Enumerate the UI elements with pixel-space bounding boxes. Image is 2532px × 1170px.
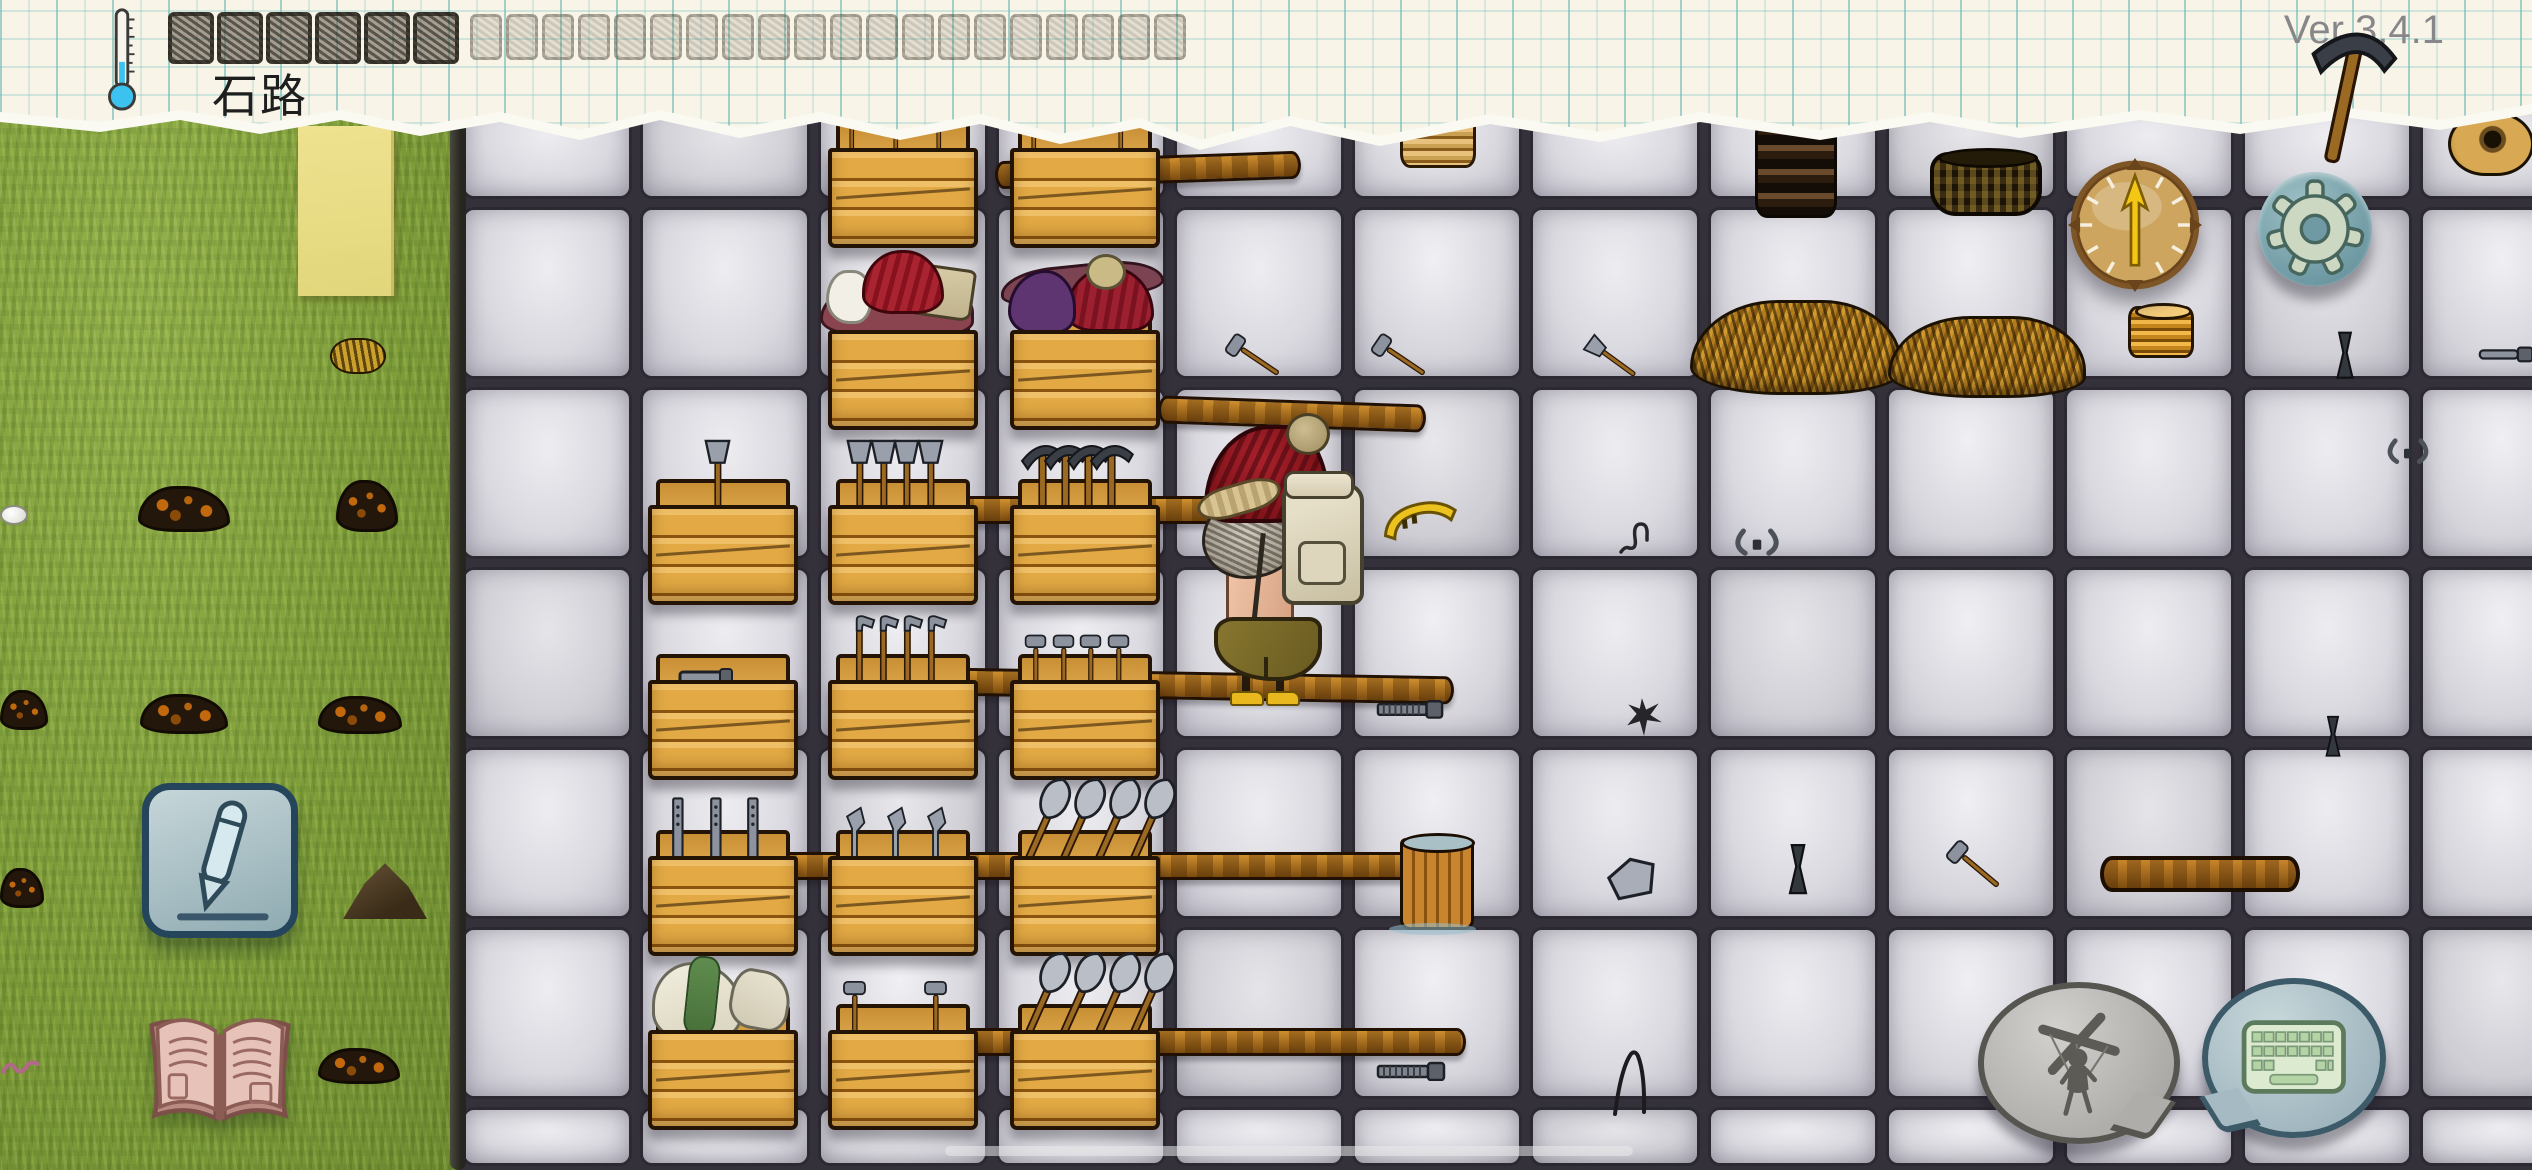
box-front [648,680,798,780]
stone-road-tile[interactable] [2420,747,2532,919]
log[interactable] [2100,856,2300,892]
gear-icon [2258,172,2372,286]
stone-road-tile[interactable] [1352,1107,1522,1166]
craft-slot-faint[interactable] [650,14,682,60]
box-front [1010,680,1160,780]
bent-wire[interactable] [1606,1046,1658,1118]
player-character[interactable] [1198,425,1356,710]
box-front [1010,330,1160,430]
adze-tool [908,614,954,690]
stone-road-tile[interactable] [2064,747,2234,919]
temperature-thermometer-icon [100,6,144,112]
craft-slot[interactable] [315,12,361,64]
storage-box[interactable] [1010,856,1160,956]
parenting-mode-button[interactable] [1978,982,2168,1132]
craft-slot-faint[interactable] [758,14,790,60]
box-front [1010,1030,1160,1130]
clothes-pile[interactable] [652,956,792,1038]
stone-road-tile[interactable] [462,207,632,379]
metal-file[interactable] [1376,698,1446,720]
terrain-border [450,96,466,1170]
storage-box[interactable] [828,856,978,956]
bucket[interactable] [1400,838,1474,930]
tongs[interactable] [2384,436,2432,468]
storage-box[interactable] [648,505,798,605]
axe-head[interactable] [1601,852,1663,905]
axe-tool [907,437,954,515]
box-front [828,856,978,956]
box-front [1010,505,1160,605]
egg[interactable] [0,505,28,525]
storage-box[interactable] [828,330,978,430]
craft-slot[interactable] [364,12,410,64]
recipe-book-button[interactable] [140,990,300,1142]
stone-road-tile[interactable] [2242,387,2412,559]
craft-slot-faint[interactable] [1010,14,1042,60]
box-front [1010,856,1160,956]
worm[interactable] [0,1056,44,1084]
craft-slot[interactable] [413,12,459,64]
sickle[interactable] [1378,494,1462,546]
craft-slot-faint[interactable] [686,14,718,60]
box-front [648,1030,798,1130]
craft-slot-faint[interactable] [794,14,826,60]
axe-tool [694,437,741,515]
box-front [828,680,978,780]
storage-box[interactable] [1010,680,1160,780]
stone-road-tile[interactable] [1530,567,1700,739]
settings-button[interactable] [2258,172,2372,286]
stone-road-tile[interactable] [462,1107,632,1166]
stone-road-tile[interactable] [2420,1107,2532,1166]
stone-road-tile[interactable] [1174,927,1344,1099]
kindling-pile[interactable] [1690,300,1902,395]
home-indicator [945,1146,1633,1156]
storage-box[interactable] [828,148,978,248]
metal-scraps[interactable] [1624,696,1664,738]
stone-road-tile[interactable] [1708,1107,1878,1166]
sandal [1230,691,1264,706]
craft-slot-faint[interactable] [1082,14,1114,60]
box-front [828,505,978,605]
storage-box[interactable] [648,856,798,956]
plate-stack-gold[interactable] [2128,306,2194,358]
open-book-icon [140,990,300,1142]
stone-road-tile[interactable] [2420,567,2532,739]
stone-road-tile[interactable] [462,567,632,739]
metal-file[interactable] [1376,1060,1448,1082]
storage-box[interactable] [1010,505,1160,605]
chisel[interactable] [2330,330,2360,382]
hat-pom [1286,413,1330,455]
stone-road-tile[interactable] [1886,387,2056,559]
box-front [828,330,978,430]
sandal [1266,691,1300,706]
craft-slot-faint[interactable] [1046,14,1078,60]
game-stage: 石路 Ver 3.4.1 [0,0,2532,1170]
chisel[interactable] [2320,714,2346,760]
box-front [1010,148,1160,248]
tongs[interactable] [1730,526,1784,560]
stone-road-tile[interactable] [2420,927,2532,1099]
storage-box[interactable] [1010,1030,1160,1130]
craft-slot-faint[interactable] [470,14,502,60]
craft-slot-faint[interactable] [902,14,934,60]
stone-road-tile[interactable] [2064,387,2234,559]
stone-road-tile[interactable] [1174,747,1344,919]
compass-home-button[interactable] [2068,158,2202,292]
pencil-icon [149,790,291,931]
craft-slot-faint[interactable] [974,14,1006,60]
wire-scrap[interactable] [1616,516,1662,556]
clothes-pile[interactable] [820,250,980,336]
metal-rod[interactable] [2478,344,2532,364]
biome-label: 石路 [212,60,308,126]
storage-box[interactable] [648,680,798,780]
craft-slot-faint[interactable] [578,14,610,60]
craft-slot-faint[interactable] [1154,14,1186,60]
craft-slot-faint[interactable] [614,14,646,60]
stone-road-tile[interactable] [640,207,810,379]
craft-slot-faint[interactable] [1118,14,1150,60]
craft-slot-faint[interactable] [722,14,754,60]
craft-slot-faint[interactable] [830,14,862,60]
stone-road-tile[interactable] [2064,567,2234,739]
stone-road-tile[interactable] [462,387,632,559]
box-front [828,1030,978,1130]
stone-road-tile[interactable] [1530,387,1700,559]
backpack[interactable] [1282,483,1364,605]
kindling-pile[interactable] [1888,316,2086,398]
storage-box[interactable] [828,505,978,605]
storage-box[interactable] [1010,330,1160,430]
storage-box[interactable] [648,1030,798,1130]
stone-road-tile[interactable] [2242,747,2412,919]
craft-slot-faint[interactable] [938,14,970,60]
chat-keyboard-button[interactable] [2202,978,2374,1126]
box-front [828,148,978,248]
stone-road-tile[interactable] [462,927,632,1099]
pickaxe-tool [1087,433,1136,515]
craft-slot-faint[interactable] [506,14,538,60]
craft-slot-faint[interactable] [542,14,574,60]
box-front [648,505,798,605]
stone-road-tile[interactable] [462,747,632,919]
storage-box[interactable] [1010,148,1160,248]
craft-slot-faint[interactable] [866,14,898,60]
stone-road-tile[interactable] [1708,567,1878,739]
basket[interactable] [1930,152,2042,216]
stone-road-tile[interactable] [1174,1107,1344,1166]
box-front [648,856,798,956]
storage-box[interactable] [828,680,978,780]
wheat-head[interactable] [330,338,386,374]
clothes-pile[interactable] [1000,254,1165,336]
paper-note[interactable] [298,126,394,296]
stone-road-tile[interactable] [2420,387,2532,559]
craft-slot[interactable] [168,12,214,64]
drawing-button[interactable] [142,783,298,938]
storage-box[interactable] [828,1030,978,1130]
stone-road-tile[interactable] [1708,927,1878,1099]
craft-slot[interactable] [266,12,312,64]
stone-road-tile[interactable] [1886,567,2056,739]
craft-slot[interactable] [217,12,263,64]
character-shorts [1214,617,1322,681]
chisel[interactable] [1782,842,1814,898]
